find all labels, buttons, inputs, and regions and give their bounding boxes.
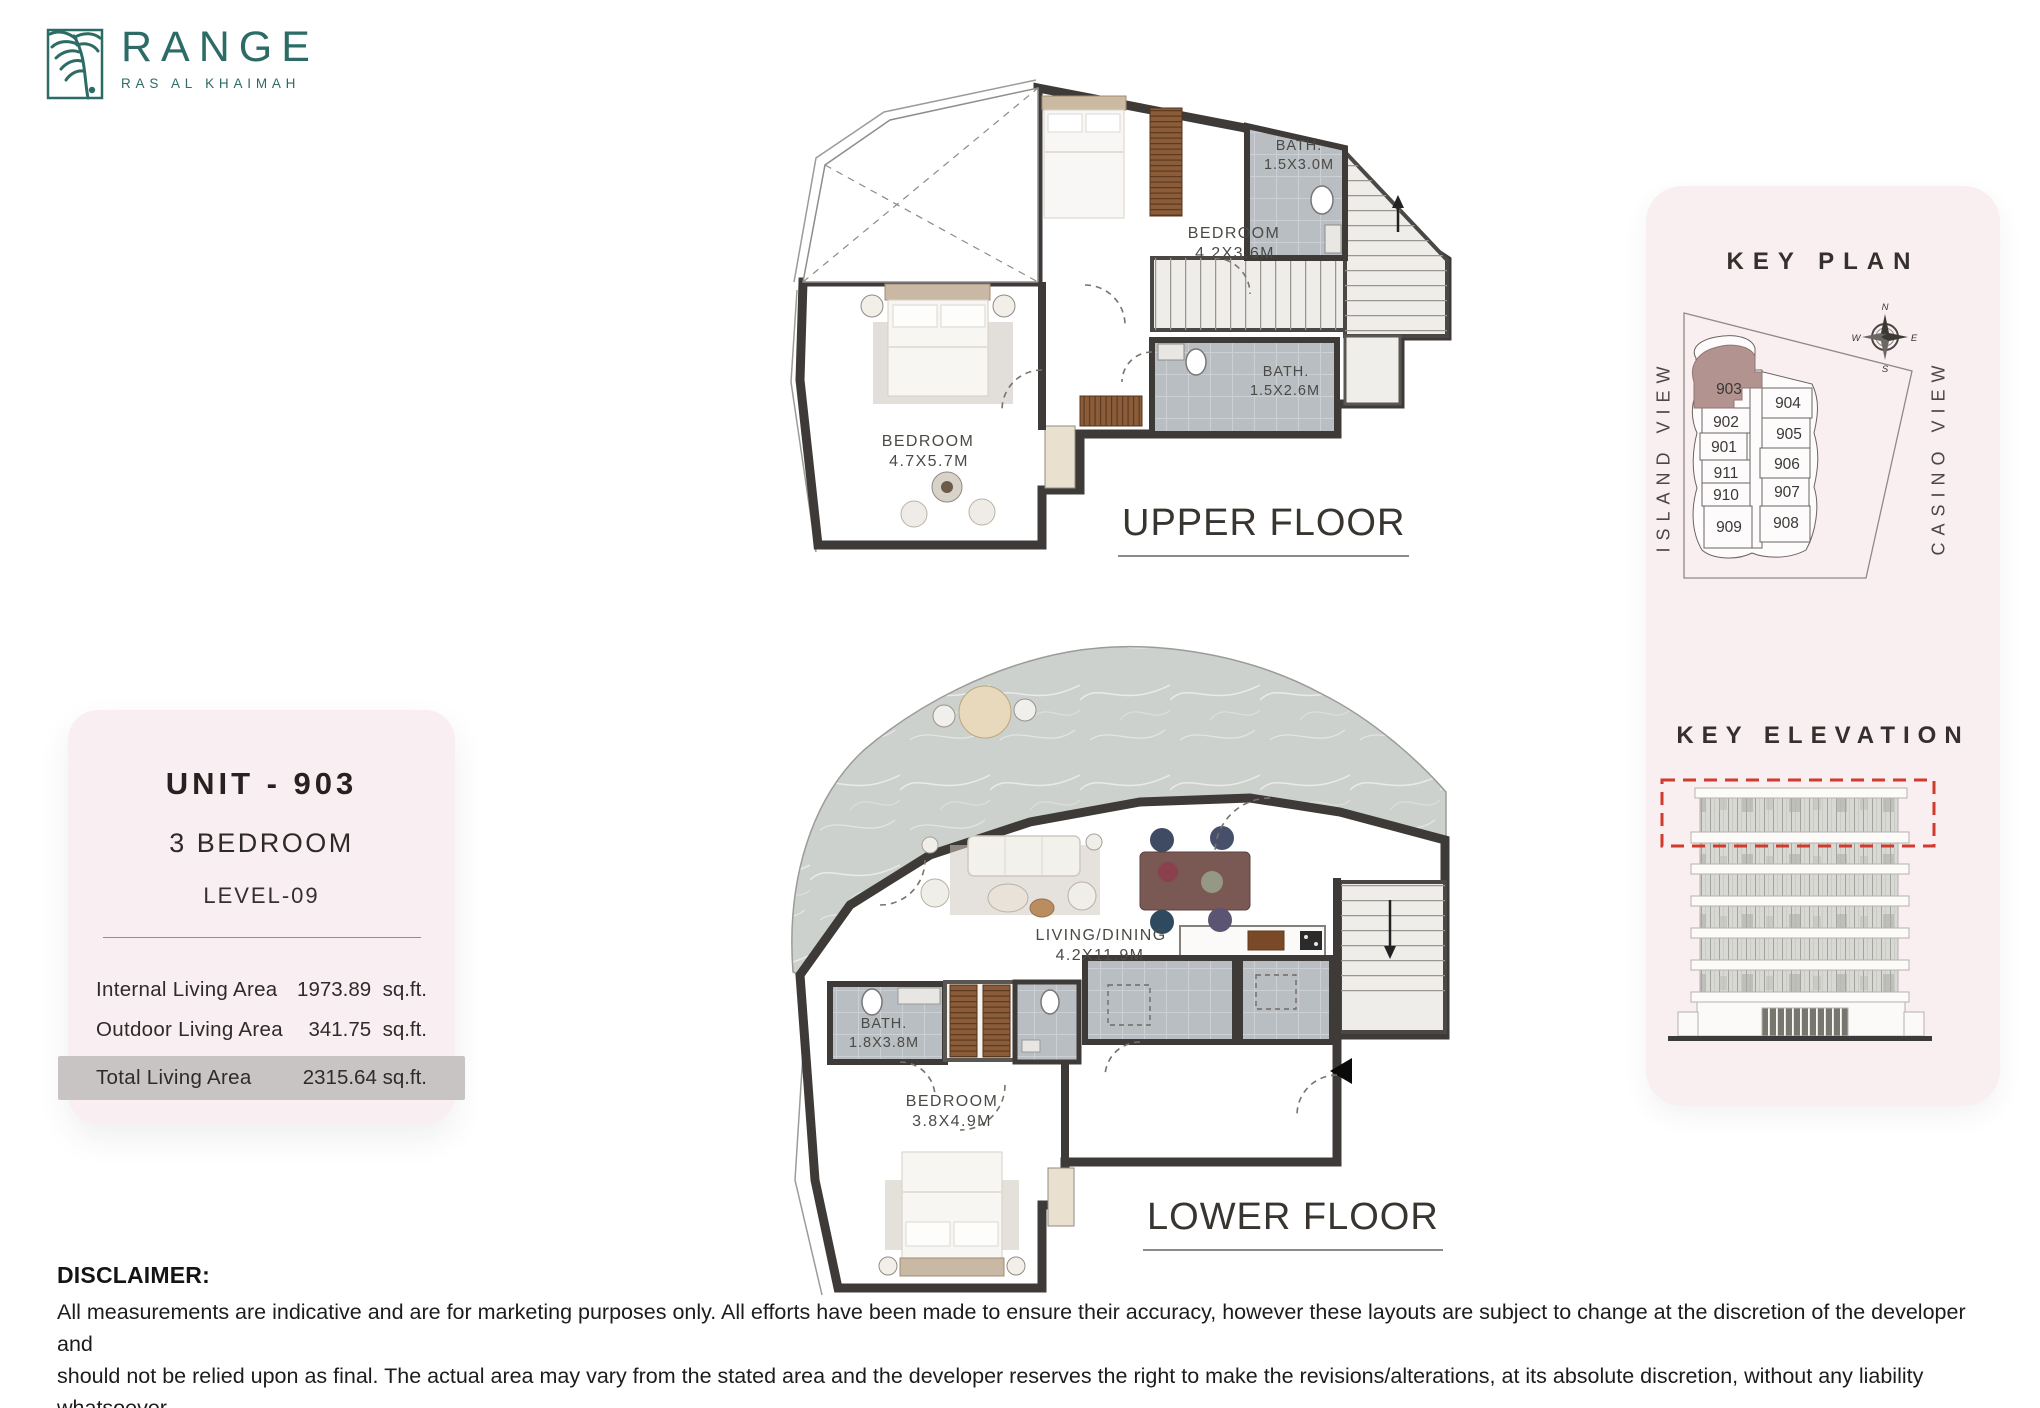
unit-info-card: UNIT - 903 3 BEDROOM LEVEL-09 Internal L… bbox=[68, 710, 455, 1124]
unit-number: 903 bbox=[1716, 381, 1742, 398]
vanity-icon bbox=[1325, 225, 1341, 253]
card-divider bbox=[103, 937, 421, 938]
area-label: Outdoor Living Area bbox=[96, 1018, 283, 1042]
toilet-icon bbox=[1186, 349, 1206, 375]
room-label: BATH. bbox=[1263, 364, 1310, 380]
room-label: BEDROOM bbox=[906, 1093, 998, 1110]
compass-e: E bbox=[1911, 333, 1918, 344]
room-dims: 1.8X3.8M bbox=[849, 1035, 919, 1051]
upper-floor-plan: BEDROOM 4.7X5.7M BEDROOM 4.2X3.6M BATH. … bbox=[790, 58, 1460, 568]
terrace-table-icon bbox=[959, 686, 1011, 738]
key-panel: KEY PLAN ISLAND VIEW CASINO VIEW N S W E bbox=[1646, 186, 2000, 1106]
disclaimer-line2: should not be relied upon as final. The … bbox=[57, 1360, 1993, 1408]
unit-number: 910 bbox=[1713, 487, 1739, 504]
key-elevation-title: KEY ELEVATION bbox=[1646, 722, 2000, 750]
palm-logo-icon bbox=[44, 26, 106, 102]
area-row-total: Total Living Area 2315.64 sq.ft. bbox=[58, 1056, 465, 1100]
unit-title: UNIT - 903 bbox=[68, 710, 455, 802]
bed-icon bbox=[879, 1152, 1025, 1276]
sink-icon bbox=[1022, 1040, 1040, 1052]
unit-number: 908 bbox=[1773, 515, 1799, 532]
room-dims: 4.2X11.9M bbox=[1056, 947, 1145, 964]
lower-stairs bbox=[1337, 878, 1445, 1035]
window-seat bbox=[1048, 1168, 1074, 1226]
ground-line bbox=[1668, 1036, 1932, 1041]
area-row-outdoor: Outdoor Living Area 341.75 sq.ft. bbox=[68, 1010, 455, 1050]
wardrobe-icon bbox=[1150, 108, 1182, 216]
area-row-internal: Internal Living Area 1973.89 sq.ft. bbox=[68, 970, 455, 1010]
room-dims: 4.2X3.6M bbox=[1195, 245, 1275, 262]
room-dims: 3.8X4.9M bbox=[912, 1113, 992, 1130]
vanity-icon bbox=[898, 988, 940, 1004]
room-dims: 1.5X3.0M bbox=[1264, 157, 1334, 173]
disclaimer-heading: DISCLAIMER: bbox=[57, 1262, 1993, 1289]
window-seat bbox=[1045, 426, 1075, 488]
room-dims: 4.7X5.7M bbox=[889, 453, 969, 470]
compass-w: W bbox=[1852, 333, 1862, 344]
brochure-page: RANGE RAS AL KHAIMAH UNIT - 903 3 BEDROO… bbox=[0, 0, 2040, 1408]
disclaimer: DISCLAIMER: All measurements are indicat… bbox=[57, 1262, 1993, 1408]
bed-icon bbox=[1042, 96, 1126, 218]
area-label: Total Living Area bbox=[96, 1066, 252, 1090]
room-label: BEDROOM bbox=[1188, 225, 1280, 242]
sink-icon bbox=[1158, 344, 1184, 360]
bed-icon bbox=[861, 284, 1015, 404]
room-label: BEDROOM bbox=[882, 433, 974, 450]
compass-s: S bbox=[1882, 364, 1889, 375]
toilet-icon bbox=[862, 989, 882, 1015]
unit-number: 901 bbox=[1711, 439, 1737, 456]
unit-number: 909 bbox=[1716, 519, 1742, 536]
unit-number: 907 bbox=[1774, 484, 1800, 501]
toilet-icon bbox=[1311, 186, 1333, 214]
dining-set-icon bbox=[1140, 826, 1250, 934]
unit-number: 906 bbox=[1774, 456, 1800, 473]
area-label: Internal Living Area bbox=[96, 978, 278, 1002]
unit-number: 911 bbox=[1714, 465, 1739, 482]
area-table: Internal Living Area 1973.89 sq.ft. Outd… bbox=[68, 970, 455, 1100]
wardrobe-icon bbox=[1080, 396, 1142, 426]
key-elevation-drawing bbox=[1650, 756, 2000, 1056]
void-open-to-below bbox=[803, 88, 1038, 282]
entrance-doors bbox=[1762, 1008, 1848, 1036]
sink-icon bbox=[1248, 931, 1284, 950]
unit-type: 3 BEDROOM bbox=[68, 828, 455, 859]
key-plan-map: N S W E bbox=[1670, 290, 1990, 600]
room-label: LIVING/DINING bbox=[1035, 927, 1166, 944]
brand-logo: RANGE RAS AL KHAIMAH bbox=[44, 26, 319, 102]
kitchen bbox=[1180, 926, 1325, 956]
toilet-icon bbox=[1041, 990, 1059, 1014]
room-label: BATH. bbox=[1276, 138, 1323, 154]
compass-n: N bbox=[1882, 302, 1889, 313]
key-plan-title: KEY PLAN bbox=[1646, 248, 2000, 276]
walkin-closet bbox=[945, 982, 1015, 1060]
unit-number: 905 bbox=[1776, 426, 1802, 443]
room-dims: 1.5X2.6M bbox=[1250, 383, 1320, 399]
ensuite-pod bbox=[1015, 982, 1079, 1062]
room-label: BATH. bbox=[861, 1016, 908, 1032]
upper-floor-caption: UPPER FLOOR bbox=[1118, 502, 1409, 557]
area-value: 2315.64 sq.ft. bbox=[303, 1066, 427, 1090]
brand-name: RANGE bbox=[121, 26, 319, 69]
unit-level: LEVEL-09 bbox=[68, 883, 455, 909]
cooktop-icon bbox=[1300, 931, 1322, 950]
disclaimer-line1: All measurements are indicative and are … bbox=[57, 1296, 1993, 1360]
brand-location: RAS AL KHAIMAH bbox=[121, 76, 319, 91]
area-value: 341.75 sq.ft. bbox=[308, 1018, 427, 1042]
unit-number: 904 bbox=[1775, 395, 1801, 412]
lower-floor-caption: LOWER FLOOR bbox=[1143, 1196, 1443, 1251]
unit-number: 902 bbox=[1713, 414, 1739, 431]
area-value: 1973.89 sq.ft. bbox=[297, 978, 427, 1002]
seating-icon bbox=[901, 472, 995, 527]
utility-pods bbox=[1085, 958, 1332, 1042]
